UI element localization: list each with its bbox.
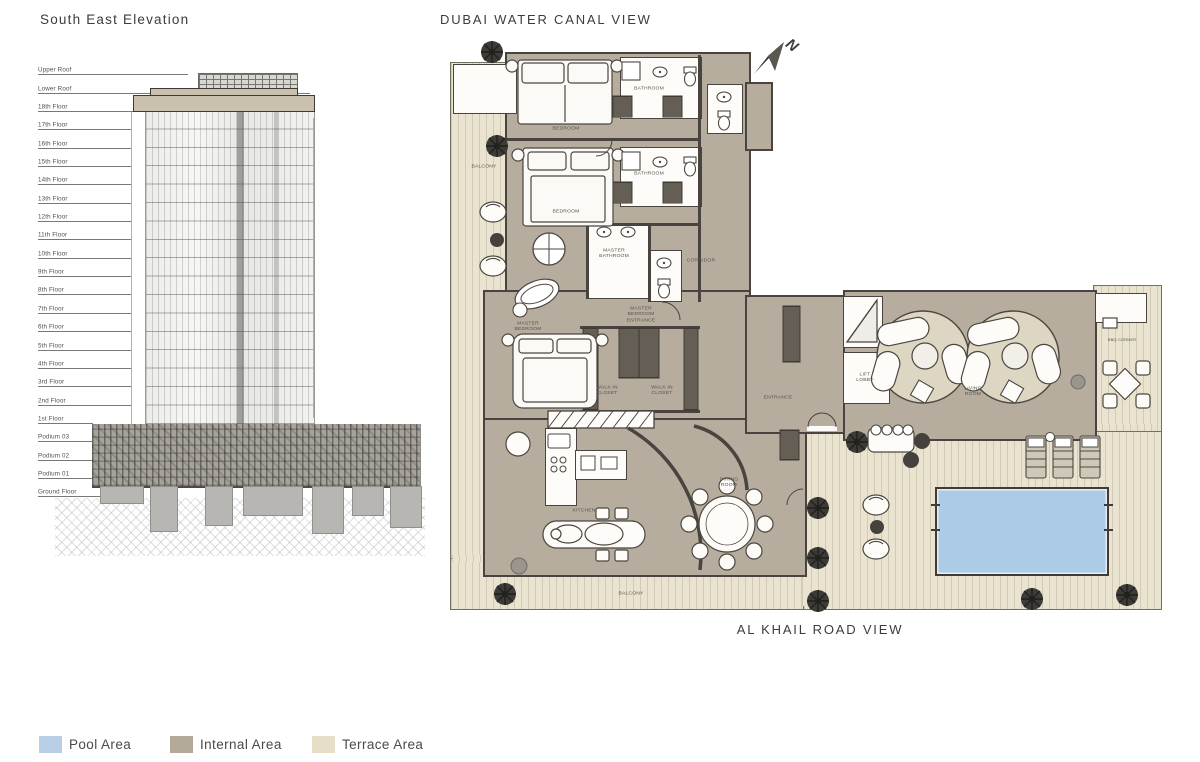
floor-label: 3rd Floor bbox=[38, 378, 64, 385]
master-bath-wall bbox=[586, 223, 700, 226]
floor-label: 13th Floor bbox=[38, 195, 68, 202]
floor-label: 15th Floor bbox=[38, 158, 68, 165]
pool-ladder-tick bbox=[931, 504, 940, 506]
floor-label: 1st Floor bbox=[38, 415, 64, 422]
entrance-hall bbox=[745, 295, 854, 434]
label-lift-lobby: LIFT LOBBY bbox=[855, 371, 875, 383]
bbq-counter bbox=[1095, 293, 1147, 323]
master-bathroom-floor bbox=[588, 225, 650, 299]
label-balcony-left: BALCONY bbox=[471, 163, 496, 169]
floor-label: Ground Floor bbox=[38, 488, 77, 495]
terrace-area-swatch bbox=[312, 736, 335, 753]
powder-annex bbox=[745, 82, 773, 151]
legend-item-internal: Internal Area bbox=[170, 736, 282, 753]
kitchen-dining-wing bbox=[483, 418, 807, 577]
kitchen-counter bbox=[545, 428, 577, 506]
closet-wall bbox=[580, 410, 700, 413]
floor-label: 16th Floor bbox=[38, 140, 68, 147]
corridor-wall bbox=[698, 55, 701, 302]
kitchen-appliance-counter bbox=[575, 450, 627, 480]
label-kitchen: KITCHEN bbox=[572, 507, 595, 513]
label-dining-room: DINING ROOM bbox=[718, 476, 740, 488]
label-bathroom-2: BATHROOM bbox=[634, 170, 664, 176]
brochure-page: South East Elevation Upper Roof Lower Ro… bbox=[0, 0, 1200, 762]
floor-label: 11th Floor bbox=[38, 231, 67, 238]
legend-item-pool: Pool Area bbox=[39, 736, 131, 753]
swimming-pool bbox=[935, 487, 1109, 576]
pool-ladder-tick bbox=[1104, 529, 1113, 531]
floor-label: 2nd Floor bbox=[38, 397, 66, 404]
floor-label: 12th Floor bbox=[38, 213, 68, 220]
floor-label: 18th Floor bbox=[38, 103, 68, 110]
label-balcony-bottom: BALCONY bbox=[618, 590, 643, 596]
master-wing bbox=[483, 290, 751, 429]
pool-area-swatch bbox=[39, 736, 62, 753]
north-arrow-icon: N bbox=[754, 35, 802, 74]
elevation-title: South East Elevation bbox=[40, 12, 189, 27]
floor-label: Upper Roof bbox=[38, 66, 71, 73]
label-master-bathroom: MASTER BATHROOM bbox=[599, 247, 630, 259]
floor-label: 5th Floor bbox=[38, 341, 64, 348]
powder-room-floor bbox=[707, 84, 743, 134]
floor-label: 8th Floor bbox=[38, 286, 64, 293]
ground-column bbox=[150, 486, 178, 532]
label-bedroom-1: BEDROOM bbox=[553, 125, 580, 131]
label-walk-in-closet-2: WALK IN CLOSET bbox=[650, 384, 675, 396]
entrance-door-opening bbox=[807, 426, 837, 431]
label-living-room: LIVING ROOM bbox=[962, 385, 984, 397]
wc-room-floor bbox=[650, 250, 682, 302]
label-corridor: CORRIDOR bbox=[687, 257, 716, 263]
internal-area-swatch bbox=[170, 736, 193, 753]
ground-column bbox=[390, 486, 422, 528]
tower-balconies-right bbox=[313, 118, 323, 418]
pool-ladder-tick bbox=[1104, 504, 1113, 506]
label-bathroom-1: BATHROOM bbox=[634, 85, 664, 91]
pool-ladder-tick bbox=[931, 529, 940, 531]
tower-balconies-left bbox=[131, 112, 147, 424]
pool-area-label: Pool Area bbox=[62, 737, 131, 752]
label-bbq-corner: BBQ CORNER bbox=[1108, 338, 1136, 343]
tower-facade bbox=[145, 110, 315, 424]
floor-label: Podium 02 bbox=[38, 452, 69, 459]
canal-view-title: DUBAI WATER CANAL VIEW bbox=[440, 12, 652, 27]
floor-label: Podium 01 bbox=[38, 470, 69, 477]
floor-label: 7th Floor bbox=[38, 305, 64, 312]
label-entrance: ENTRANCE bbox=[764, 394, 793, 400]
floor-label: 14th Floor bbox=[38, 176, 68, 183]
floor-label: 6th Floor bbox=[38, 323, 64, 330]
ground-column bbox=[243, 486, 303, 516]
internal-area-label: Internal Area bbox=[193, 737, 282, 752]
road-view-title: AL KHAIL ROAD VIEW bbox=[737, 622, 904, 637]
north-label: N bbox=[782, 35, 802, 56]
floor-label: 9th Floor bbox=[38, 268, 64, 275]
master-bath-wall bbox=[586, 223, 589, 299]
wc-wall bbox=[648, 225, 651, 302]
floor-label: 17th Floor bbox=[38, 121, 68, 128]
ground-column bbox=[352, 486, 384, 516]
podium-block bbox=[92, 424, 421, 488]
stairs-box bbox=[843, 296, 883, 348]
label-master-bedroom: MASTER BEDROOM bbox=[513, 320, 544, 332]
terrace-area-label: Terrace Area bbox=[335, 737, 423, 752]
ground-column bbox=[100, 486, 144, 504]
floor-label: 10th Floor bbox=[38, 250, 68, 257]
terrace-patch bbox=[1095, 424, 1157, 431]
tree-icon bbox=[481, 41, 503, 63]
penthouse-floor-slab bbox=[133, 95, 315, 112]
floor-label: Podium 03 bbox=[38, 433, 69, 440]
ground-column bbox=[205, 486, 233, 526]
floor-label: Lower Roof bbox=[38, 85, 71, 92]
closet-wall bbox=[580, 326, 700, 329]
bathroom-2-floor bbox=[620, 147, 702, 207]
ground-column bbox=[312, 486, 344, 534]
floor-label: 4th Floor bbox=[38, 360, 64, 367]
label-bedroom-2: BEDROOM bbox=[553, 208, 580, 214]
label-walk-in-closet-1: WALK IN CLOSET bbox=[595, 384, 620, 396]
planter-box bbox=[453, 64, 517, 114]
legend-item-terrace: Terrace Area bbox=[312, 736, 423, 753]
bedroom-divider-wall bbox=[505, 138, 701, 141]
label-master-bedroom-entrance: MASTER BEDROOM ENTRANCE bbox=[625, 305, 657, 323]
